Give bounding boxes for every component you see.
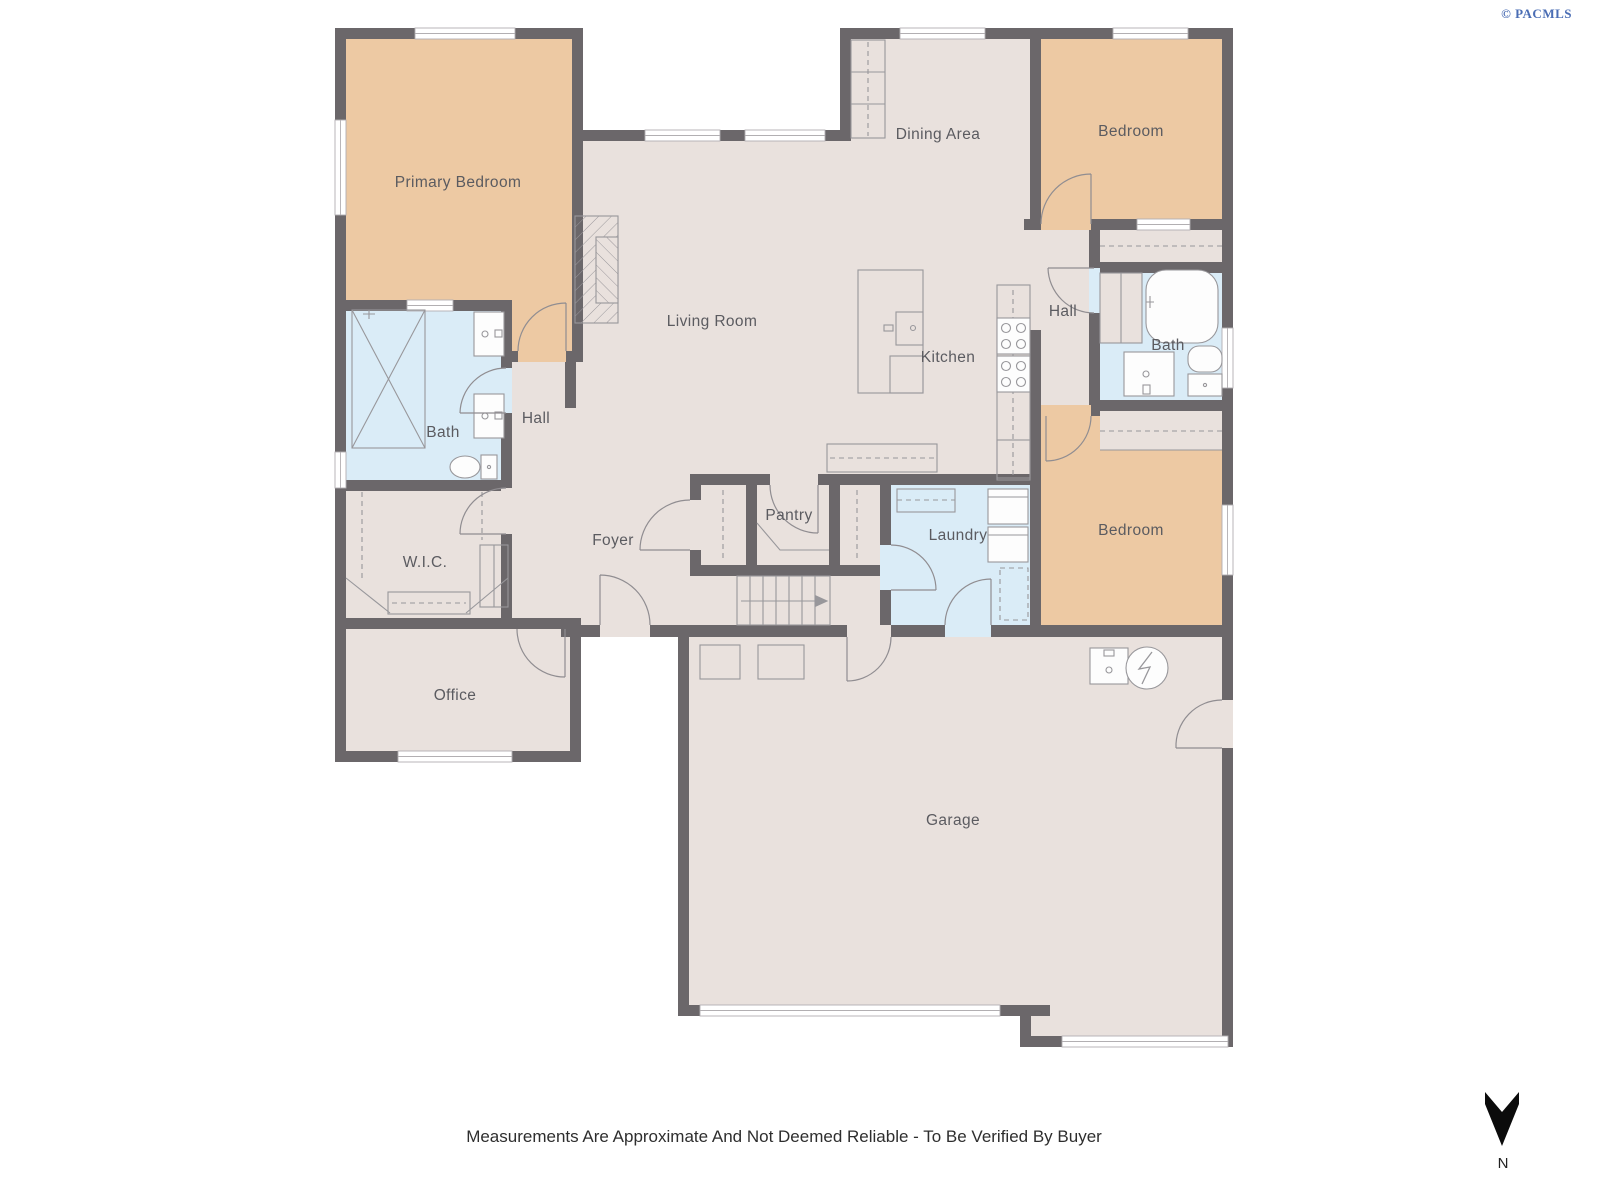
room-label-laundry: Laundry bbox=[929, 527, 988, 544]
disclaimer-text: Measurements Are Approximate And Not Dee… bbox=[466, 1127, 1102, 1146]
utility-sink-icon bbox=[1090, 648, 1128, 684]
room-label-garage: Garage bbox=[926, 812, 980, 829]
north-label: N bbox=[1498, 1155, 1509, 1172]
room-label-dining: Dining Area bbox=[896, 126, 981, 143]
room-label-bath-left: Bath bbox=[426, 424, 460, 441]
toilet-icon bbox=[450, 455, 497, 479]
watermark: © PACMLS bbox=[1501, 6, 1572, 21]
room-label-living: Living Room bbox=[667, 313, 758, 330]
bathtub-icon bbox=[1146, 270, 1218, 343]
room-label-wic: W.I.C. bbox=[403, 554, 448, 571]
room-label-bedroom-right: Bedroom bbox=[1098, 522, 1164, 539]
room-label-pantry: Pantry bbox=[765, 507, 812, 524]
room-label-office: Office bbox=[434, 687, 477, 704]
dryer-icon bbox=[988, 527, 1028, 562]
room-label-primary-bedroom: Primary Bedroom bbox=[395, 174, 522, 191]
floor-plan-page: Primary Bedroom Bedroom Dining Area Livi… bbox=[0, 0, 1600, 1200]
room-label-bedroom-top: Bedroom bbox=[1098, 123, 1164, 140]
fireplace-icon bbox=[575, 216, 618, 323]
compass: N bbox=[1485, 1092, 1519, 1172]
floor-plan-canvas: Primary Bedroom Bedroom Dining Area Livi… bbox=[0, 0, 1600, 1200]
room-label-kitchen: Kitchen bbox=[921, 349, 976, 366]
room-label-hall-left: Hall bbox=[522, 410, 550, 427]
washer-icon bbox=[988, 489, 1028, 524]
room-label-bath-right: Bath bbox=[1151, 337, 1185, 354]
room-label-foyer: Foyer bbox=[592, 532, 634, 549]
north-arrow-icon bbox=[1485, 1092, 1519, 1146]
stove-icon bbox=[997, 318, 1030, 354]
room-label-hall-right: Hall bbox=[1049, 303, 1077, 320]
